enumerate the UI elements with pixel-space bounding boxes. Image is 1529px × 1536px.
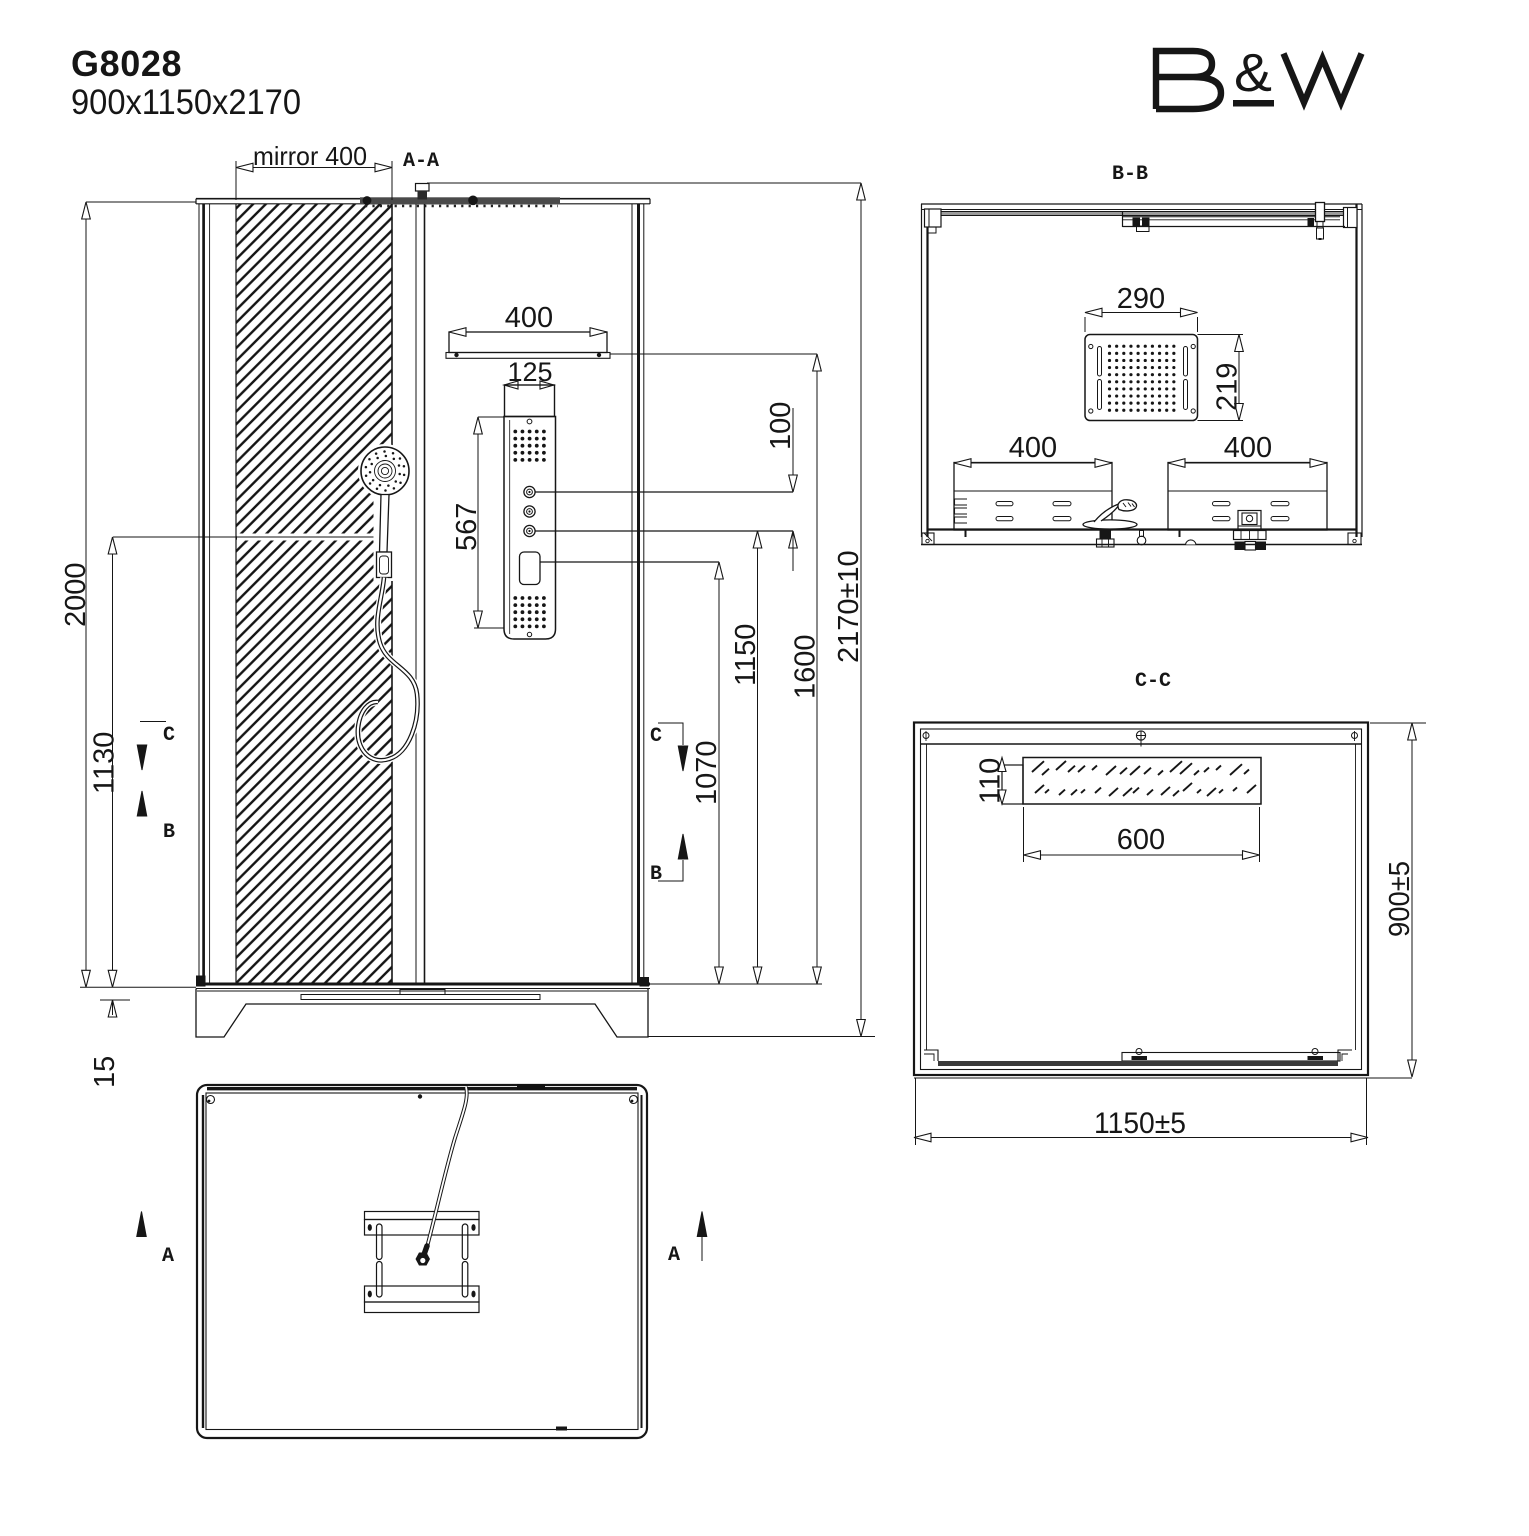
svg-text:C: C xyxy=(650,725,662,748)
svg-text:1150: 1150 xyxy=(730,624,762,686)
svg-text:1150±5: 1150±5 xyxy=(1094,1107,1186,1140)
svg-text:A: A xyxy=(668,1244,680,1267)
svg-text:110: 110 xyxy=(975,758,1007,804)
svg-text:400: 400 xyxy=(1224,432,1272,464)
svg-text:A-A: A-A xyxy=(403,150,439,173)
svg-text:2000: 2000 xyxy=(60,562,92,627)
svg-text:15: 15 xyxy=(89,1056,121,1088)
svg-text:400: 400 xyxy=(505,302,553,334)
svg-text:C-C: C-C xyxy=(1135,670,1171,693)
svg-text:600: 600 xyxy=(1117,824,1165,856)
svg-text:1070: 1070 xyxy=(691,740,723,805)
svg-text:B: B xyxy=(650,863,662,886)
svg-text:mirror 400: mirror 400 xyxy=(253,141,367,171)
svg-text:B: B xyxy=(163,821,175,844)
svg-text:290: 290 xyxy=(1117,283,1165,315)
svg-text:1130: 1130 xyxy=(89,732,121,794)
svg-text:125: 125 xyxy=(507,357,552,387)
svg-text:567: 567 xyxy=(451,503,483,551)
svg-text:2170±10: 2170±10 xyxy=(833,550,865,663)
svg-text:C: C xyxy=(163,724,175,747)
svg-text:B-B: B-B xyxy=(1112,163,1148,186)
svg-text:900x1150x2170: 900x1150x2170 xyxy=(71,83,301,122)
svg-text:900±5: 900±5 xyxy=(1384,861,1416,937)
svg-text:100: 100 xyxy=(765,402,797,450)
svg-text:&: & xyxy=(1234,43,1272,103)
svg-text:G8028: G8028 xyxy=(71,43,182,84)
svg-text:1600: 1600 xyxy=(790,634,822,699)
svg-text:A: A xyxy=(162,1245,174,1268)
svg-text:219: 219 xyxy=(1212,363,1244,411)
svg-text:400: 400 xyxy=(1009,432,1057,464)
